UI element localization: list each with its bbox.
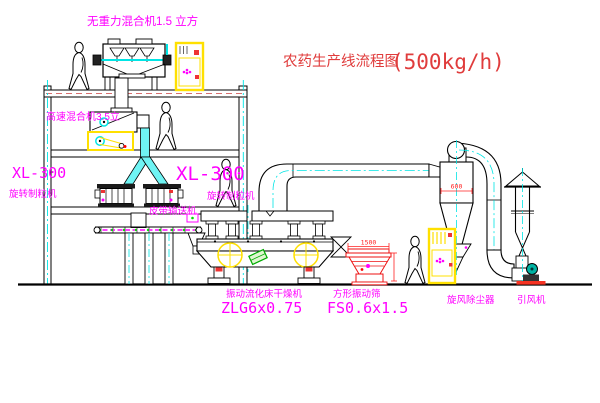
duct-down-elbow bbox=[487, 250, 514, 278]
exhaust-duct bbox=[259, 164, 455, 211]
mixer-discharge-tube bbox=[141, 128, 150, 158]
fluid-bed-dryer-machine bbox=[187, 205, 351, 284]
v-distribution-chute bbox=[124, 157, 168, 184]
label-granulator-right-model: XL-300 bbox=[176, 163, 245, 185]
screen-dimension-text: 1500 bbox=[361, 239, 377, 247]
vibrating-screen-machine: 1500 bbox=[346, 239, 397, 285]
person-figure-2 bbox=[156, 102, 176, 149]
label-cyclone: 旋风除尘器 bbox=[447, 294, 495, 306]
granulator-right-machine bbox=[143, 184, 183, 207]
indicator-red-icon bbox=[194, 50, 199, 55]
person-figure-1 bbox=[69, 42, 89, 89]
belt-conveyor-machine bbox=[94, 213, 205, 284]
indicator-red-icon bbox=[448, 233, 452, 237]
cyclone-dimension-text: 600 bbox=[451, 183, 463, 191]
vibration-mounts bbox=[206, 221, 325, 239]
red-dot-icon bbox=[124, 145, 127, 148]
label-belt-conveyor: 皮带输送机 bbox=[149, 205, 197, 217]
label-gravity-mixer: 无重力混合机1.5 立方 bbox=[87, 14, 198, 28]
person-figure-4 bbox=[405, 236, 425, 283]
fan-base bbox=[517, 281, 546, 285]
diagram-title-capacity: (500kg/h) bbox=[391, 50, 505, 74]
label-granulator-left-model: XL-300 bbox=[12, 164, 66, 182]
label-high-speed-mixer: 高速混合机3.5立 bbox=[46, 110, 120, 123]
granulator-left-machine bbox=[95, 184, 135, 207]
control-cabinet-upper bbox=[176, 43, 203, 90]
label-fan: 引风机 bbox=[517, 294, 546, 306]
label-granulator-left-name: 旋转制粒机 bbox=[9, 188, 57, 200]
label-granulator-right-name: 旋转制粒机 bbox=[207, 190, 255, 202]
dryer-supports bbox=[208, 267, 320, 284]
gravity-free-mixer-machine bbox=[93, 39, 171, 112]
label-dryer-model: ZLG6x0.75 bbox=[221, 299, 302, 317]
label-screen-model: FS0.6x1.5 bbox=[327, 299, 408, 317]
pesticide-production-line-diagram: 600 bbox=[0, 0, 600, 403]
control-cabinet-lower bbox=[429, 229, 455, 283]
diagram-title: 农药生产线流程图 bbox=[283, 53, 399, 70]
diagram-canvas: 600 bbox=[0, 0, 600, 403]
